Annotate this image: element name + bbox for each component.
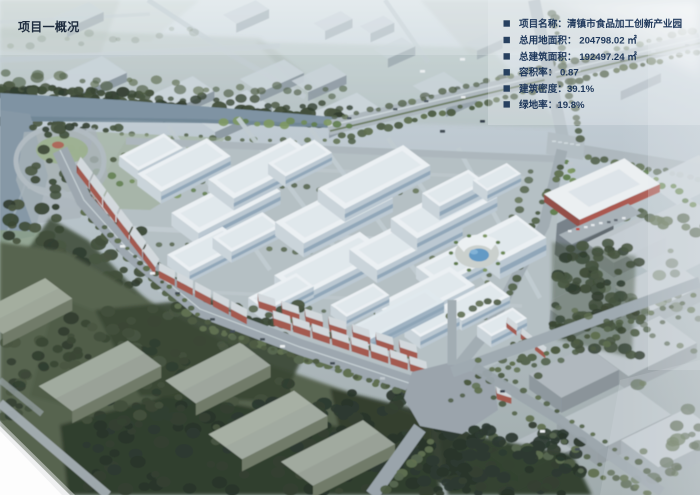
svg-text:项目名称：清镇市食品加工创新产业园: 项目名称：清镇市食品加工创新产业园	[519, 18, 682, 30]
svg-text:绿地率：19.8%: 绿地率：19.8%	[519, 99, 585, 111]
svg-text:项目一概况: 项目一概况	[18, 19, 80, 34]
svg-text:容积率： 0.87: 容积率： 0.87	[518, 67, 579, 79]
svg-text:总用地面积： 204798.02 ㎡: 总用地面积： 204798.02 ㎡	[519, 34, 637, 46]
svg-text:建筑密度：39.1%: 建筑密度：39.1%	[518, 83, 595, 95]
svg-text:总建筑面积： 192497.24 ㎡: 总建筑面积： 192497.24 ㎡	[519, 51, 637, 63]
